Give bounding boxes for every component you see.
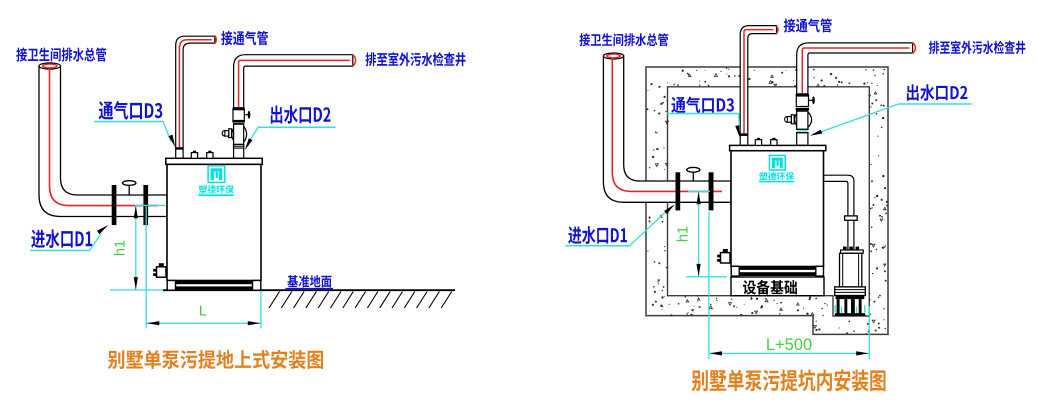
svg-text:h1: h1: [113, 240, 129, 256]
svg-text:L: L: [199, 304, 207, 320]
svg-text:L+500: L+500: [766, 336, 812, 354]
svg-text:h1: h1: [676, 226, 692, 242]
